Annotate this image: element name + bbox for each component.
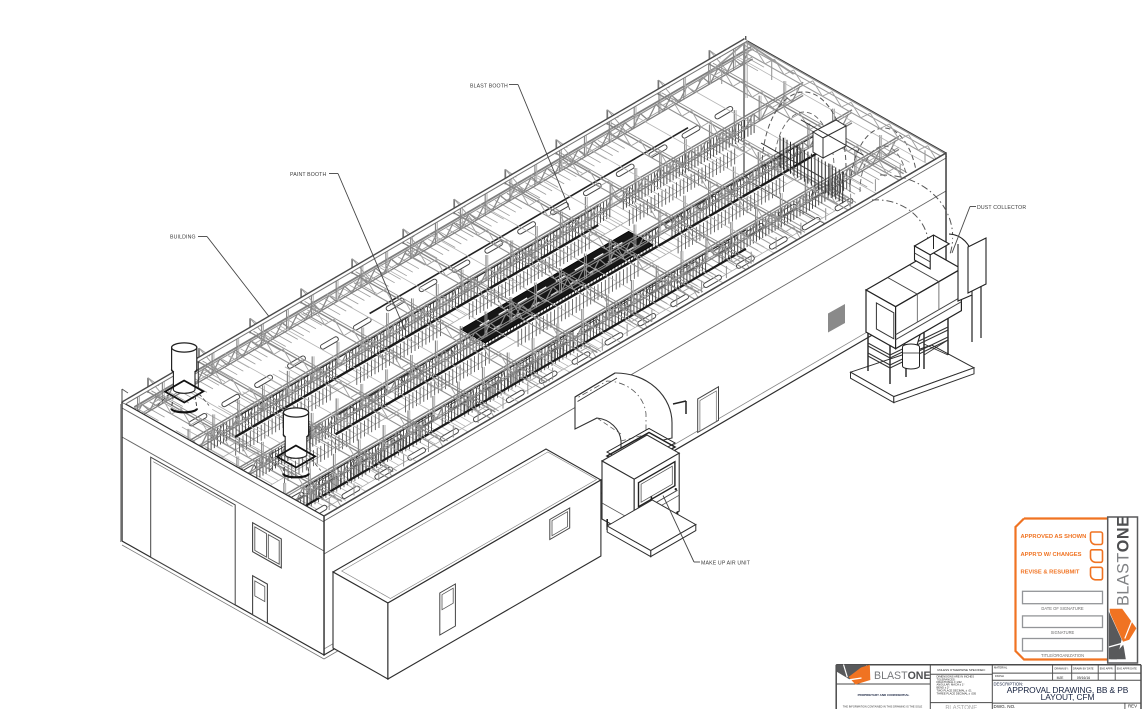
svg-text:APPROVED AS SHOWN: APPROVED AS SHOWN [1021, 534, 1087, 540]
svg-text:LAYOUT, CFM: LAYOUT, CFM [1041, 692, 1095, 702]
svg-text:REV: REV [1128, 704, 1137, 709]
svg-text:UNLESS OTHERWISE SPECIFIED:: UNLESS OTHERWISE SPECIFIED: [937, 668, 986, 672]
svg-text:DWG. NO.: DWG. NO. [994, 704, 1016, 709]
svg-text:BLASTONE: BLASTONE [1114, 516, 1132, 606]
svg-text:DRAWN BY DATE: DRAWN BY DATE [1073, 668, 1094, 671]
svg-text:BLAST BOOTH: BLAST BOOTH [470, 84, 508, 90]
svg-text:BLASTONE: BLASTONE [874, 670, 931, 682]
svg-text:BLASTONE: BLASTONE [945, 705, 977, 709]
svg-text:PROPRIETARY AND CONFIDENTIAL: PROPRIETARY AND CONFIDENTIAL [858, 693, 910, 697]
svg-text:BUILDING: BUILDING [170, 235, 196, 241]
svg-text:09/16/16: 09/16/16 [1077, 676, 1090, 680]
svg-text:DATE OF SIGNATURE: DATE OF SIGNATURE [1041, 606, 1083, 611]
svg-text:ENG APPR:: ENG APPR: [1100, 668, 1114, 671]
svg-text:DUST COLLECTOR: DUST COLLECTOR [977, 205, 1026, 211]
svg-text:SIGNATURE: SIGNATURE [1051, 630, 1075, 635]
svg-text:ENG APPR DATE: ENG APPR DATE [1117, 668, 1137, 671]
svg-text:REVISE & RESUBMIT: REVISE & RESUBMIT [1021, 569, 1080, 575]
svg-text:MAKE UP AIR UNIT: MAKE UP AIR UNIT [701, 561, 751, 567]
svg-text:APPR'D W/ CHANGES: APPR'D W/ CHANGES [1021, 552, 1082, 558]
svg-text:MJE: MJE [1057, 676, 1065, 680]
svg-text:TITLE/ORGANIZATION: TITLE/ORGANIZATION [1041, 653, 1084, 658]
svg-text:PAINT BOOTH: PAINT BOOTH [290, 172, 326, 178]
svg-text:DRAWN BY:: DRAWN BY: [1055, 668, 1069, 671]
